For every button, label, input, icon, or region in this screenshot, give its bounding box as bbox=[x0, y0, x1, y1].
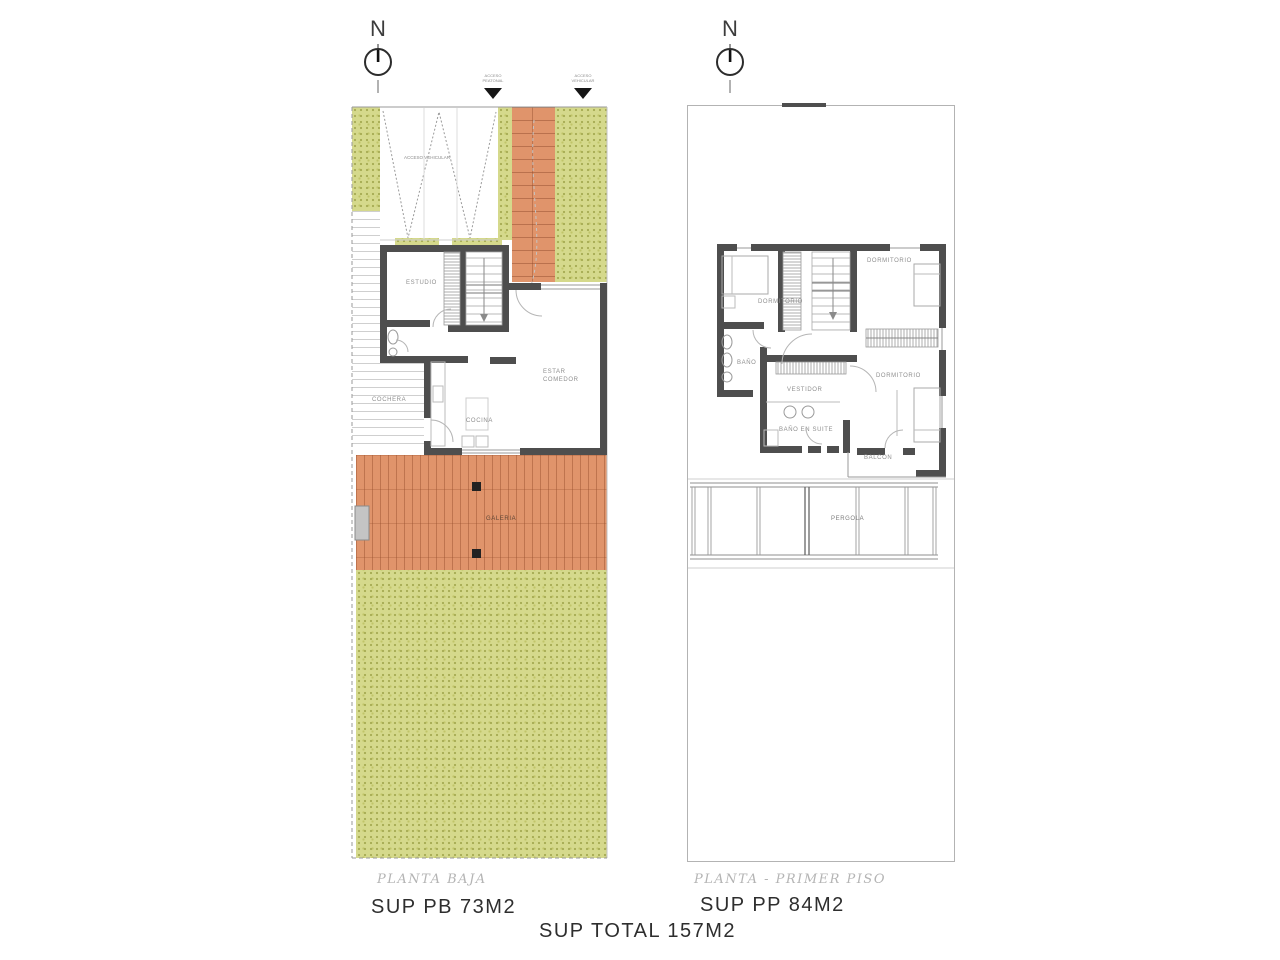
room-label-dormitorio-1: DORMITORIO bbox=[758, 299, 803, 305]
area-label-total: SUP TOTAL 157M2 bbox=[539, 920, 736, 943]
plan-linework bbox=[0, 0, 1280, 960]
room-label-estudio: ESTUDIO bbox=[406, 280, 437, 286]
garden-patch bbox=[555, 107, 607, 282]
room-label-bano-en-suite: BAÑO EN SUITE bbox=[779, 427, 833, 433]
carport-paving bbox=[352, 211, 380, 448]
garden-patch bbox=[352, 107, 380, 211]
room-label-estar: ESTAR bbox=[543, 369, 566, 375]
room-label-bano: BAÑO bbox=[737, 360, 756, 366]
stair-arrow-left bbox=[480, 258, 488, 322]
north-letter: N bbox=[722, 16, 738, 41]
room-label-dormitorio-3: DORMITORIO bbox=[876, 373, 921, 379]
room-label-cochera: COCHERA bbox=[372, 397, 406, 403]
planter-window-box bbox=[452, 238, 502, 246]
access-marker-label: ACCESO VEHICULAR bbox=[561, 74, 605, 83]
plan-title-primer-piso: PLANTA - PRIMER PISO bbox=[694, 872, 886, 887]
wood-deck bbox=[356, 455, 607, 570]
access-marker-line2: PEATONAL bbox=[471, 79, 515, 84]
room-label-galeria: GALERIA bbox=[486, 516, 516, 522]
lot-boundary bbox=[687, 105, 955, 862]
floor-plan-sheet: N N ACCESO PEATONAL ACCESO VEHICULAR ACC… bbox=[0, 0, 1280, 960]
room-label-vestidor: VESTIDOR bbox=[787, 387, 822, 393]
area-label-pp: SUP PP 84M2 bbox=[700, 894, 845, 917]
north-arrow: N bbox=[356, 10, 400, 94]
garden-patch bbox=[498, 107, 512, 240]
driveway-area bbox=[380, 107, 498, 240]
north-arrow: N bbox=[708, 10, 752, 94]
access-marker-line2: VEHICULAR bbox=[561, 79, 605, 84]
carport-paving bbox=[380, 363, 424, 448]
plan-title-planta-baja: PLANTA BAJA bbox=[377, 872, 487, 887]
planter-window-box bbox=[395, 238, 439, 246]
room-label-balcon: BALCON bbox=[864, 455, 892, 461]
driveway-label: ACCESO VEHICULAR bbox=[398, 156, 456, 161]
room-label-pergola: PERGOLA bbox=[831, 516, 864, 522]
north-letter: N bbox=[370, 16, 386, 41]
area-label-pb: SUP PB 73M2 bbox=[371, 896, 516, 919]
room-label-dormitorio-2: DORMITORIO bbox=[867, 258, 912, 264]
room-label-comedor: COMEDOR bbox=[543, 377, 579, 383]
access-marker-triangles bbox=[484, 88, 592, 99]
back-garden bbox=[356, 570, 607, 858]
room-label-cocina: COCINA bbox=[466, 418, 493, 424]
access-marker-label: ACCESO PEATONAL bbox=[471, 74, 515, 83]
entry-path bbox=[512, 107, 555, 282]
